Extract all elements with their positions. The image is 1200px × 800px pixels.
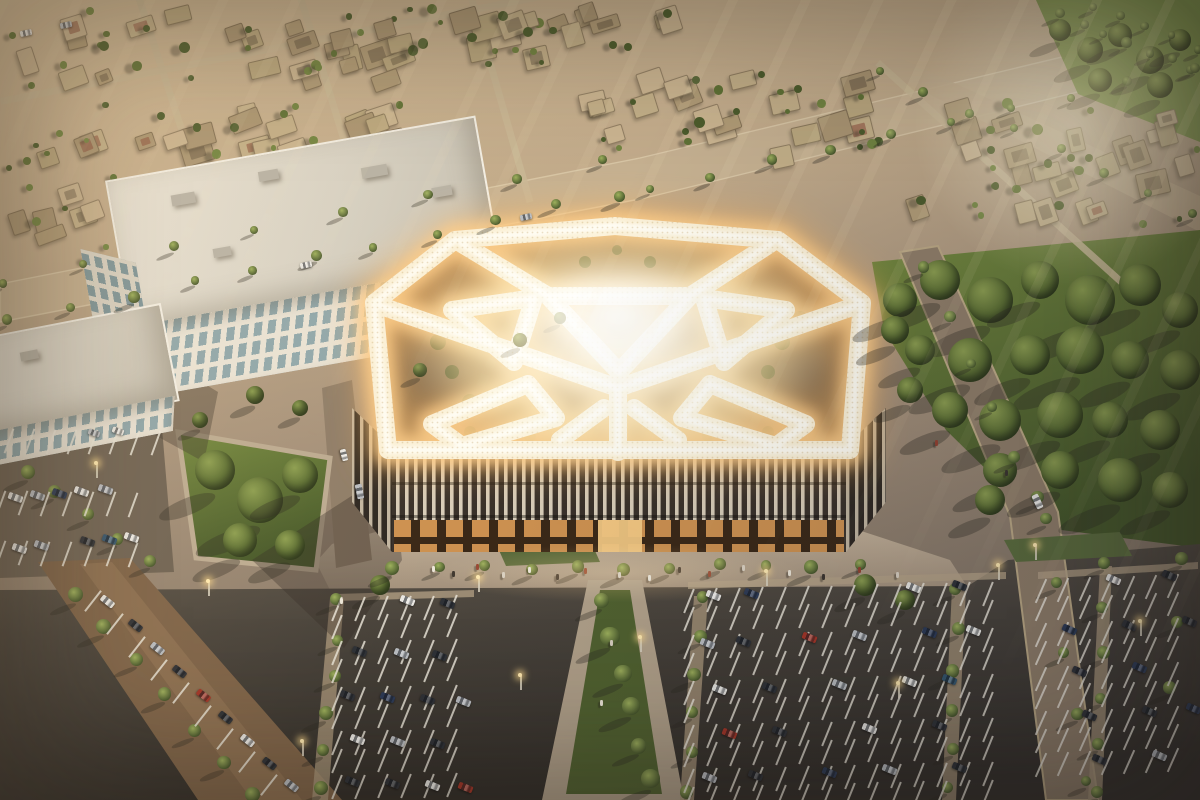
aerial-city-render xyxy=(0,0,1200,800)
vignette-overlay xyxy=(0,0,1200,800)
